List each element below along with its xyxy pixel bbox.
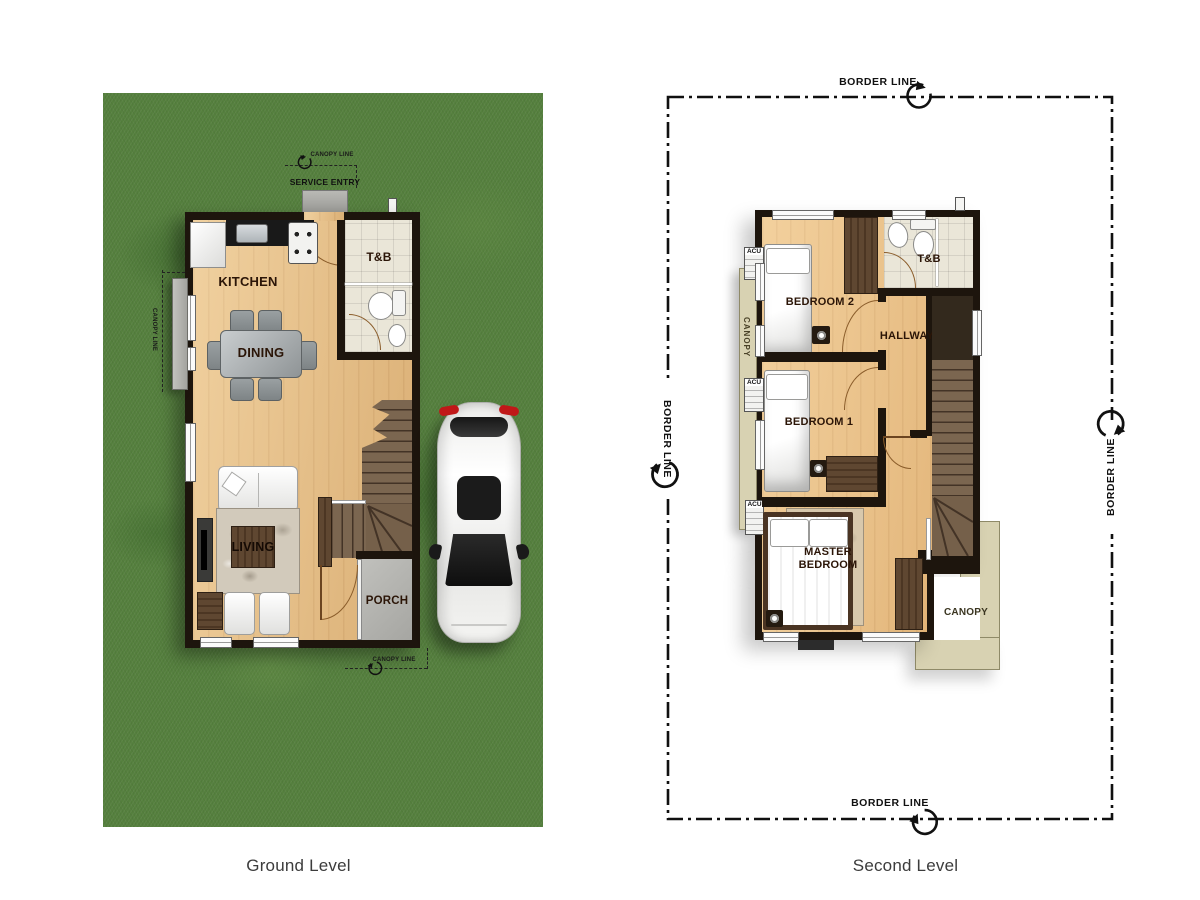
tb2-bottom-wall xyxy=(880,288,973,296)
master-door-leaf xyxy=(883,436,911,438)
stove xyxy=(288,222,318,264)
sofa xyxy=(218,466,298,512)
pillow xyxy=(770,519,809,547)
desk-bedroom1 xyxy=(826,456,878,492)
hall-wall-seg xyxy=(878,350,886,370)
window xyxy=(755,263,765,301)
hall-cabinet xyxy=(318,497,332,567)
master-bedroom-label: MASTER BEDROOM xyxy=(794,546,862,571)
porch-partition xyxy=(356,551,412,559)
tb-ground-partition xyxy=(337,220,345,360)
stair-winder-lines xyxy=(366,504,412,558)
canopy-line-left xyxy=(162,270,163,392)
kitchen-sink xyxy=(236,224,268,243)
divider-b1-master xyxy=(762,497,878,507)
toilet-ground xyxy=(368,292,394,320)
side-table xyxy=(197,592,223,630)
canopy-left-label: CANOPY xyxy=(742,306,751,368)
service-entry-label: SERVICE ENTRY xyxy=(286,178,364,188)
canopy-line-left-label: CANOPY LINE xyxy=(150,300,157,360)
stair-nosing xyxy=(926,518,931,560)
hall-wall-seg xyxy=(878,408,886,507)
rear-window xyxy=(450,417,508,437)
window xyxy=(200,637,232,648)
throw-pillow xyxy=(221,471,246,496)
window xyxy=(185,423,196,482)
rotation-arrow-icon xyxy=(904,802,951,849)
pillow xyxy=(766,248,810,274)
acu-label: ACU xyxy=(745,379,763,386)
closet xyxy=(844,217,878,294)
service-stoop xyxy=(302,190,348,214)
refrigerator xyxy=(190,222,226,268)
hallway-label: HALLWAY xyxy=(876,330,938,343)
porch-label: PORCH xyxy=(362,595,412,608)
window xyxy=(755,420,765,470)
window xyxy=(772,210,834,220)
porch-door-leaf xyxy=(320,565,322,620)
window-awning xyxy=(798,640,834,650)
sunroof xyxy=(457,476,501,520)
roof-vent xyxy=(955,197,965,211)
living-label: LIVING xyxy=(223,540,283,554)
window xyxy=(763,632,799,642)
window xyxy=(862,632,920,642)
canopy-line-bottom-rise xyxy=(427,648,428,669)
night-lamp xyxy=(766,610,783,627)
armchair xyxy=(224,592,255,635)
dining-label: DINING xyxy=(221,346,301,361)
second-canopy-bottom xyxy=(915,637,1000,670)
car-top-view xyxy=(437,402,521,643)
acu-label: ACU xyxy=(746,501,763,508)
canopy-line-left-tick xyxy=(162,272,185,273)
window xyxy=(253,637,299,648)
stair-winder-lines xyxy=(932,496,973,556)
nook-wall xyxy=(910,430,927,438)
dining-chair xyxy=(258,378,282,401)
windshield xyxy=(445,534,513,586)
hall-wall-seg xyxy=(878,288,886,302)
night-lamp xyxy=(812,326,830,344)
pillow xyxy=(809,519,848,547)
car-body xyxy=(437,402,521,643)
stair-flight-up xyxy=(362,400,412,504)
armchair xyxy=(259,592,290,635)
bedroom1-label: BEDROOM 1 xyxy=(776,416,862,429)
floor-plan-sheet: CANOPY LINE SERVICE ENTRY T&B KITCHEN DI… xyxy=(0,0,1200,900)
hood-line xyxy=(451,624,507,626)
sofa-cushion-line xyxy=(258,473,259,507)
tb-shower-divider xyxy=(345,283,412,285)
divider-b2-b1 xyxy=(762,352,878,362)
stair-void xyxy=(932,296,973,360)
wardrobe xyxy=(895,558,923,630)
toilet-tank-ground xyxy=(392,290,406,316)
ground-level-caption: Ground Level xyxy=(226,856,371,876)
tb-ground-bottom-wall xyxy=(337,352,420,360)
kitchen-label: KITCHEN xyxy=(198,275,298,290)
toilet-tank-second xyxy=(910,219,936,230)
bedroom2-label: BEDROOM 2 xyxy=(780,296,860,309)
acu-label: ACU xyxy=(745,248,763,255)
window xyxy=(892,210,926,220)
rotation-arrow-icon xyxy=(896,78,936,118)
tv xyxy=(201,530,207,570)
staircase-second xyxy=(932,296,973,556)
window xyxy=(972,310,982,356)
stair-flight xyxy=(932,360,973,496)
sink-tb-ground xyxy=(388,324,406,347)
roof-vent xyxy=(388,198,397,213)
night-lamp xyxy=(810,460,827,477)
pillow xyxy=(766,374,808,400)
staircase-ground xyxy=(322,400,412,558)
side-canopy-awning xyxy=(172,278,188,390)
canopy-right-label: CANOPY xyxy=(936,607,996,619)
second-level-caption: Second Level xyxy=(833,856,978,876)
acu-unit: ACU xyxy=(744,378,764,412)
dining-chair xyxy=(230,378,254,401)
tb-ground-label: T&B xyxy=(350,251,408,265)
window xyxy=(755,325,765,357)
